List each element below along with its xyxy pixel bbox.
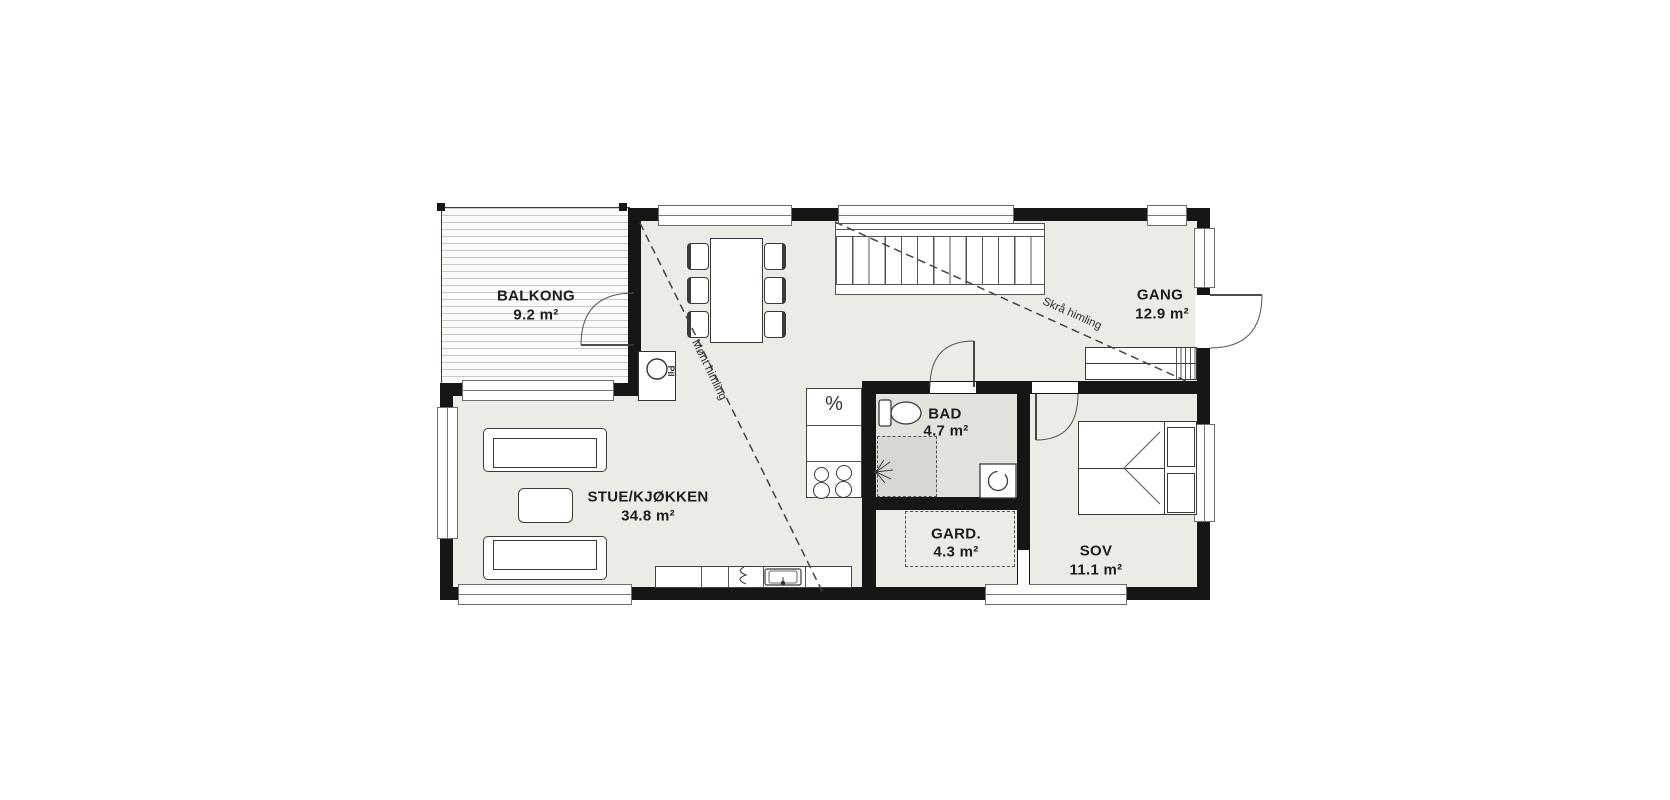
sov-door-arc [1036, 394, 1078, 440]
room-label-sov: SOV [1080, 543, 1113, 560]
plan-vector-overlay [0, 0, 1670, 800]
washing-machine-icon [980, 464, 1016, 498]
room-area-sov: 11.1 m² [1070, 562, 1123, 579]
pillar-icon [647, 359, 667, 379]
room-area-stue: 34.8 m² [621, 508, 675, 525]
room-area-bad: 4.7 m² [923, 423, 968, 440]
room-label-balkong: BALKONG [497, 288, 575, 305]
shower-head-icon [874, 460, 893, 483]
room-label-stue: STUE/KJØKKEN [587, 489, 708, 506]
ridge-ceiling-dashed-line [640, 223, 823, 593]
toilet-icon [879, 400, 921, 426]
room-area-gang: 12.9 m² [1135, 306, 1189, 323]
sloped-ceiling-dashed-line [835, 222, 1186, 381]
bad-door-arc [930, 341, 974, 387]
room-label-gang: GANG [1137, 287, 1183, 304]
floor-plan-canvas: % [0, 0, 1670, 800]
room-area-gard: 4.3 m² [933, 544, 978, 561]
sink-icon [765, 569, 801, 585]
bed-fold-lines [1124, 432, 1160, 504]
room-label-gard: GARD. [931, 526, 981, 543]
room-area-balkong: 9.2 m² [513, 307, 558, 324]
dishwasher-icon [740, 567, 746, 584]
room-label-bad: BAD [928, 406, 961, 423]
annotation-pillar: Pil [666, 365, 676, 376]
entry-door-arc [1210, 295, 1262, 348]
balcony-door-arc [581, 293, 634, 345]
